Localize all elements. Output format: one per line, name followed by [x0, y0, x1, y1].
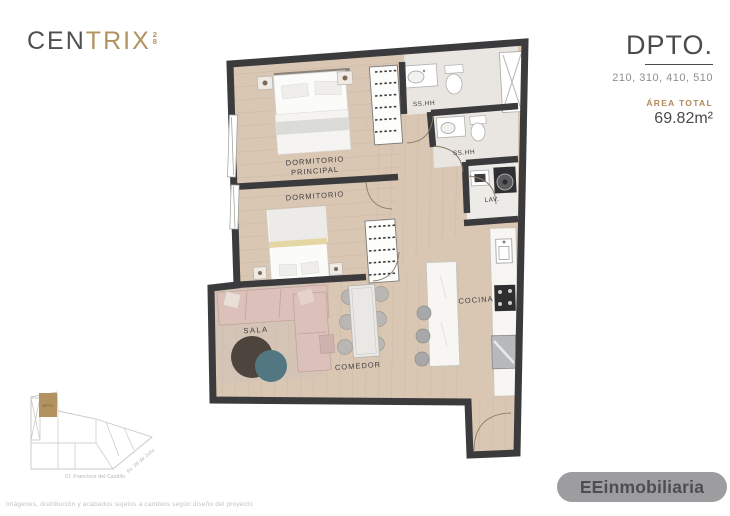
plant: [334, 267, 338, 271]
bed1-pillow: [281, 83, 308, 99]
room-label-lavanderia: LAV.: [484, 196, 499, 204]
developer-logo-text: EEinmobiliaria: [580, 477, 704, 498]
floor-plan-svg: DORMITORIOPRINCIPALDORMITORIOSS.HHSS.HHL…: [0, 0, 730, 516]
coffee-table-2: [255, 350, 287, 382]
toilet-tank: [445, 64, 464, 73]
keyplan-unit-label: DPTO: [43, 404, 54, 408]
stool: [416, 329, 430, 343]
faucet: [423, 70, 425, 72]
brochure-page: CENTRIX28 DPTO. 210, 310, 410, 510 ÁREA …: [0, 0, 730, 516]
wall: [402, 62, 404, 114]
stove: [494, 285, 516, 312]
bed2-pillow: [279, 264, 296, 276]
dining-chair: [338, 340, 353, 355]
developer-logo: EEinmobiliaria: [557, 472, 727, 502]
burner: [498, 302, 502, 306]
dining-table: [349, 284, 380, 358]
faucet: [503, 241, 506, 244]
wall: [466, 159, 518, 163]
room-label-sala: SALA: [243, 325, 269, 336]
disclaimer-text: Imágenes, distribución y acabados sujeto…: [6, 501, 253, 508]
wall: [464, 219, 518, 223]
side-table: [319, 335, 334, 354]
street-label-castillo: Cl. Francisco del Castillo: [65, 474, 125, 480]
stool: [415, 352, 429, 366]
plant: [343, 76, 348, 81]
plant: [263, 81, 268, 86]
closet-master: [369, 65, 402, 145]
wall: [465, 162, 467, 213]
burner: [508, 301, 512, 305]
bed1-pillow: [315, 81, 341, 94]
stool: [417, 306, 431, 320]
burner: [498, 290, 502, 294]
bed2-pillow: [301, 261, 319, 274]
plant: [258, 271, 262, 275]
washer-door: [503, 180, 508, 185]
burner: [508, 289, 512, 293]
